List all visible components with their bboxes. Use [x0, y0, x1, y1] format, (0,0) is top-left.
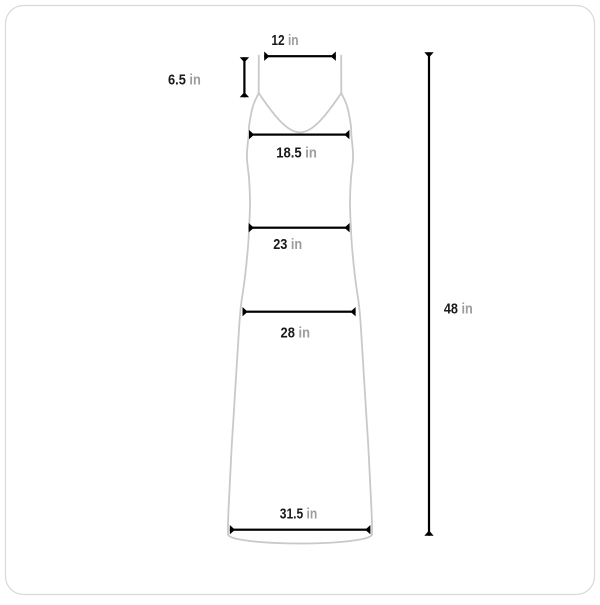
- svg-text:31.5 in: 31.5 in: [280, 507, 318, 523]
- svg-text:6.5 in: 6.5 in: [168, 73, 201, 89]
- svg-text:23 in: 23 in: [273, 237, 302, 253]
- svg-text:28 in: 28 in: [281, 325, 311, 341]
- svg-text:18.5 in: 18.5 in: [276, 145, 317, 161]
- svg-text:12 in: 12 in: [271, 33, 298, 49]
- svg-text:48 in: 48 in: [444, 301, 473, 317]
